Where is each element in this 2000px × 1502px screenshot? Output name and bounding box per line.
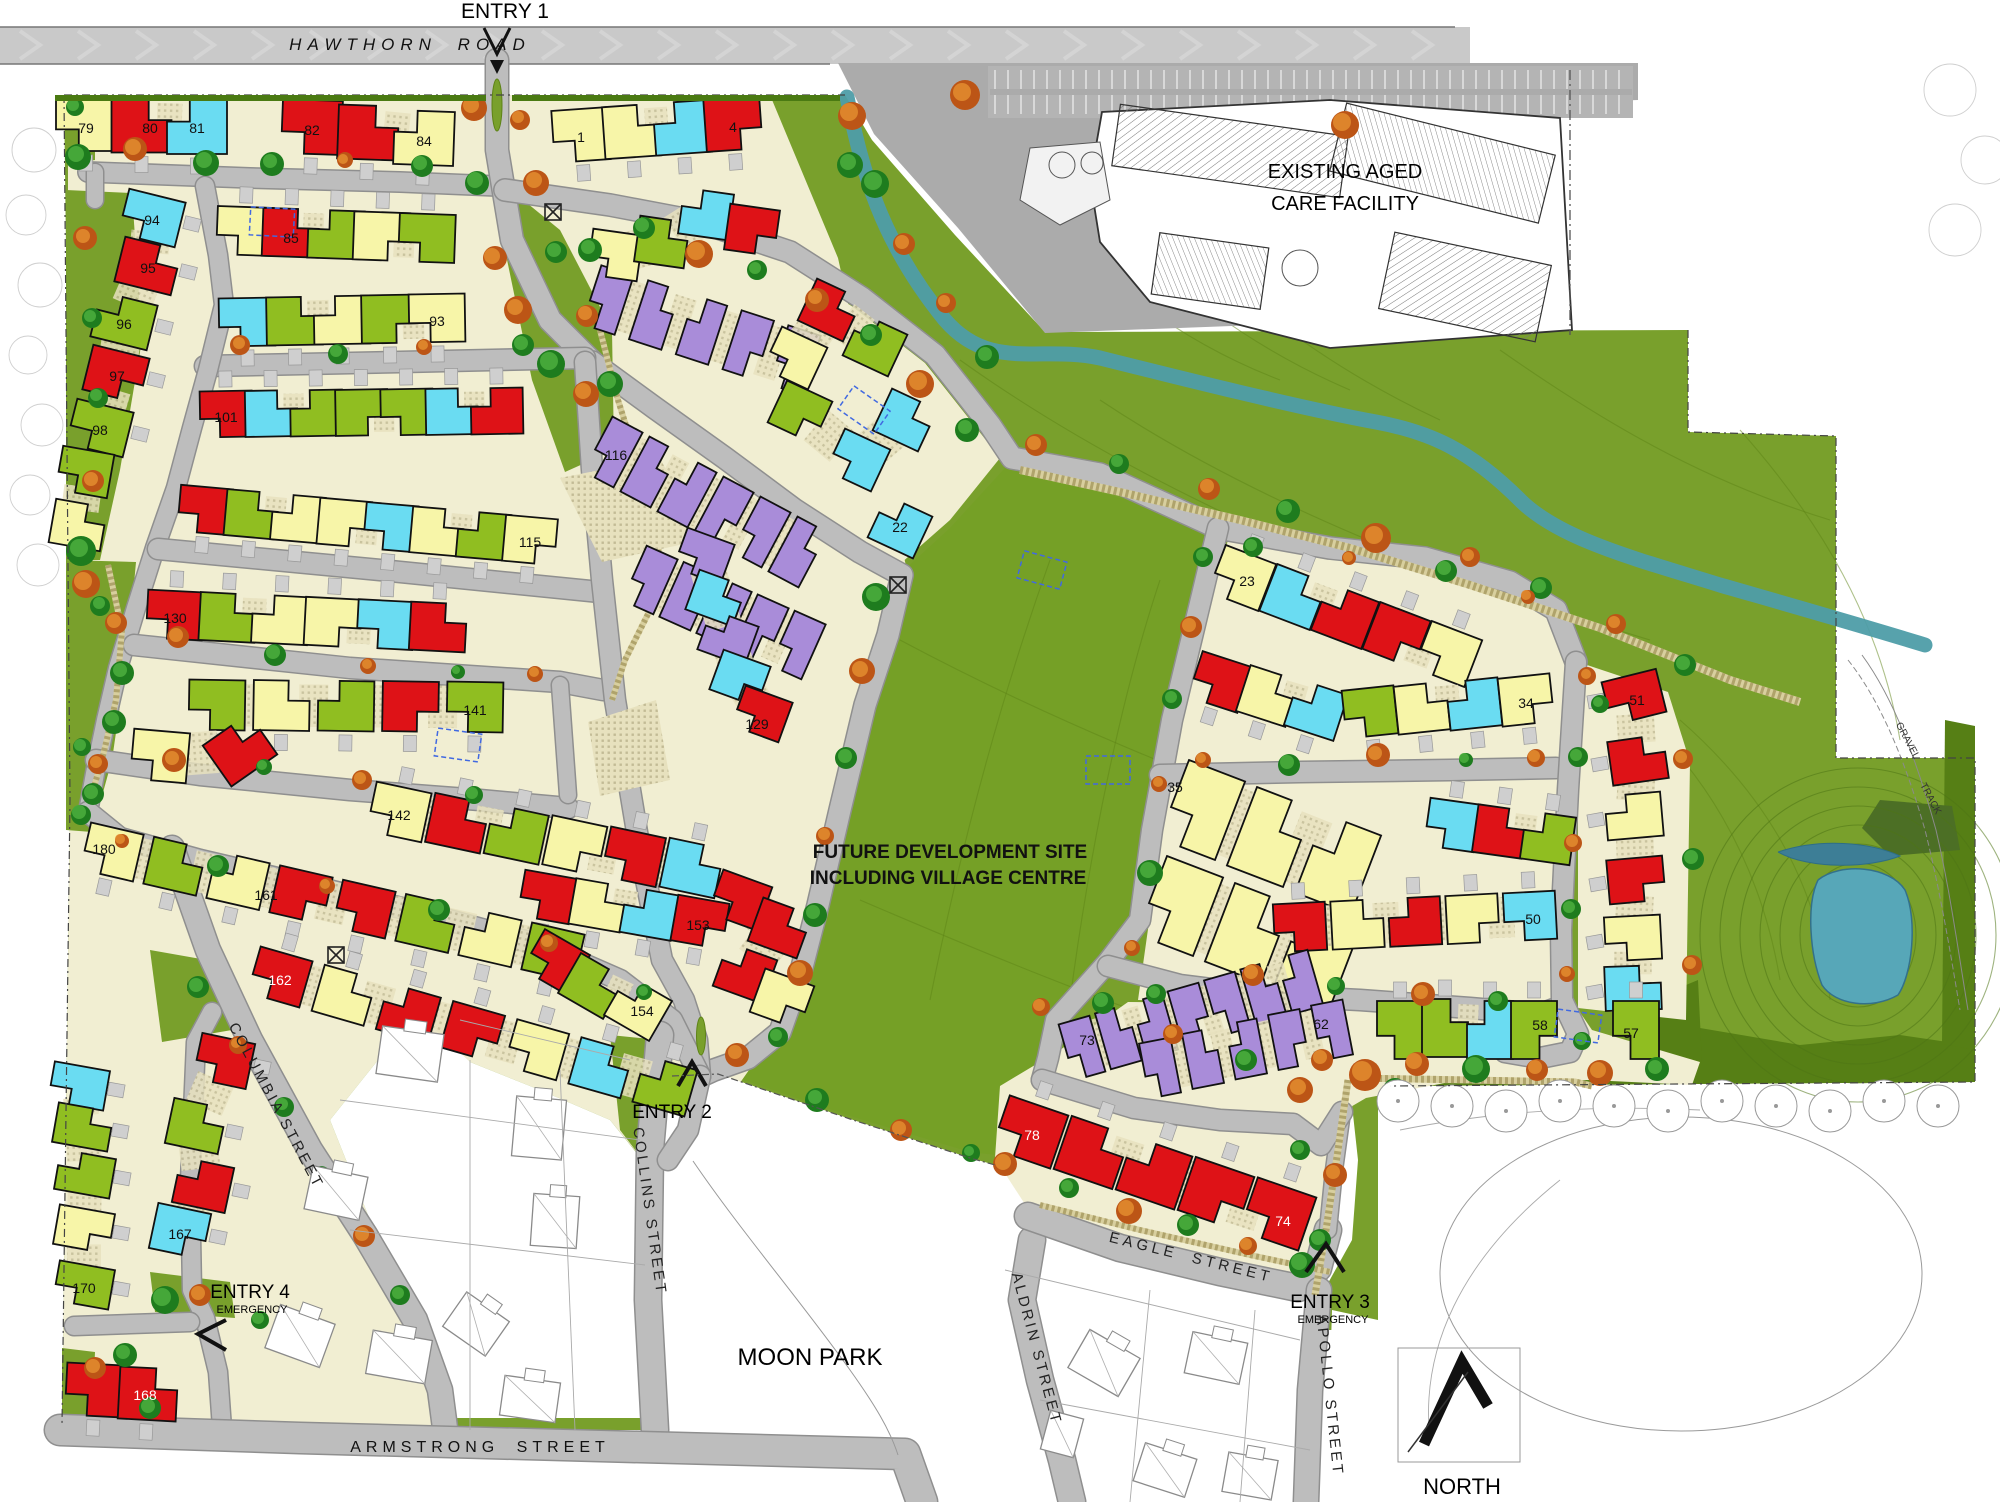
svg-text:81: 81 bbox=[189, 120, 205, 136]
svg-text:101: 101 bbox=[214, 409, 238, 425]
svg-text:84: 84 bbox=[416, 133, 432, 149]
svg-text:161: 161 bbox=[254, 887, 278, 903]
svg-text:MOON PARK: MOON PARK bbox=[738, 1344, 883, 1371]
svg-text:EXISTING AGED: EXISTING AGED bbox=[1268, 161, 1422, 183]
svg-text:NORTH: NORTH bbox=[1423, 1474, 1501, 1499]
svg-text:130: 130 bbox=[163, 610, 187, 626]
svg-text:142: 142 bbox=[387, 807, 411, 823]
svg-text:ENTRY 3: ENTRY 3 bbox=[1290, 1292, 1370, 1313]
svg-text:141: 141 bbox=[463, 702, 487, 718]
svg-text:74: 74 bbox=[1275, 1213, 1291, 1229]
svg-text:22: 22 bbox=[892, 519, 908, 535]
svg-text:ENTRY 1: ENTRY 1 bbox=[461, 0, 549, 23]
svg-text:4: 4 bbox=[729, 119, 737, 135]
svg-text:35: 35 bbox=[1167, 779, 1183, 795]
svg-text:34: 34 bbox=[1518, 695, 1534, 711]
svg-text:ARMSTRONG STREET: ARMSTRONG STREET bbox=[350, 1439, 610, 1456]
svg-text:EMERGENCY: EMERGENCY bbox=[1298, 1314, 1370, 1326]
svg-text:95: 95 bbox=[140, 260, 156, 276]
svg-text:96: 96 bbox=[116, 316, 132, 332]
svg-text:116: 116 bbox=[605, 447, 628, 463]
svg-text:INCLUDING VILLAGE CENTRE: INCLUDING VILLAGE CENTRE bbox=[810, 868, 1087, 889]
svg-text:EMERGENCY: EMERGENCY bbox=[217, 1304, 289, 1316]
svg-text:94: 94 bbox=[144, 212, 160, 228]
svg-text:167: 167 bbox=[168, 1226, 192, 1242]
svg-text:62: 62 bbox=[1313, 1016, 1329, 1032]
svg-text:51: 51 bbox=[1629, 692, 1645, 708]
svg-text:180: 180 bbox=[92, 841, 116, 857]
svg-text:154: 154 bbox=[630, 1003, 654, 1019]
svg-text:23: 23 bbox=[1239, 573, 1255, 589]
svg-text:98: 98 bbox=[92, 422, 108, 438]
svg-text:FUTURE DEVELOPMENT SITE: FUTURE DEVELOPMENT SITE bbox=[813, 842, 1087, 863]
svg-text:73: 73 bbox=[1079, 1032, 1095, 1048]
svg-text:129: 129 bbox=[745, 716, 769, 732]
svg-text:162: 162 bbox=[268, 972, 292, 988]
svg-text:85: 85 bbox=[283, 230, 299, 246]
svg-text:82: 82 bbox=[304, 122, 320, 138]
svg-text:50: 50 bbox=[1525, 911, 1541, 927]
svg-text:168: 168 bbox=[133, 1387, 157, 1403]
svg-text:1: 1 bbox=[577, 129, 585, 145]
svg-text:80: 80 bbox=[142, 120, 158, 136]
svg-text:97: 97 bbox=[109, 368, 125, 384]
svg-text:153: 153 bbox=[686, 917, 710, 933]
svg-text:170: 170 bbox=[72, 1280, 96, 1296]
svg-text:ENTRY 2: ENTRY 2 bbox=[632, 1102, 712, 1123]
svg-text:78: 78 bbox=[1024, 1127, 1040, 1143]
svg-text:58: 58 bbox=[1532, 1017, 1548, 1033]
svg-text:HAWTHORN ROAD: HAWTHORN ROAD bbox=[289, 35, 531, 54]
svg-text:79: 79 bbox=[78, 120, 94, 136]
svg-text:93: 93 bbox=[429, 313, 445, 329]
svg-text:115: 115 bbox=[519, 534, 542, 550]
svg-text:CARE FACILITY: CARE FACILITY bbox=[1271, 193, 1419, 215]
svg-text:ENTRY 4: ENTRY 4 bbox=[210, 1282, 290, 1303]
svg-text:57: 57 bbox=[1623, 1025, 1639, 1041]
